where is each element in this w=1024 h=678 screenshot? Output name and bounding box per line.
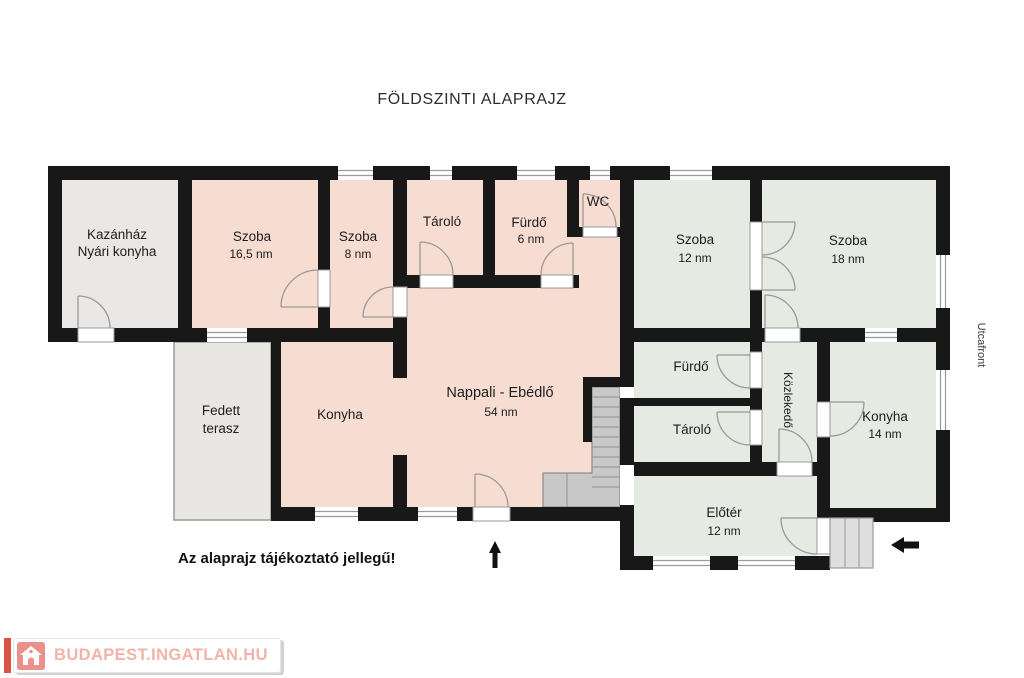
svg-text:16,5 nm: 16,5 nm xyxy=(229,247,272,261)
svg-text:Fürdő: Fürdő xyxy=(673,359,708,374)
svg-text:Nappali - Ebédlő: Nappali - Ebédlő xyxy=(446,385,553,401)
svg-text:18 nm: 18 nm xyxy=(831,252,864,266)
svg-text:12 nm: 12 nm xyxy=(678,251,711,265)
label-konyha-left: Konyha xyxy=(317,407,363,422)
svg-text:Közlekedő: Közlekedő xyxy=(781,372,795,428)
label-furdo-right: Fürdő xyxy=(673,359,708,374)
label-kozlekedo: Közlekedő xyxy=(781,372,795,428)
street-side-label: Utcafront xyxy=(975,323,987,368)
screenshot-root: FÖLDSZINTI ALAPRAJZ xyxy=(0,0,1024,678)
label-tarolo-right: Tároló xyxy=(673,422,711,437)
logo-text: BUDAPEST.INGATLAN.HU xyxy=(54,646,268,665)
svg-text:terasz: terasz xyxy=(203,421,240,436)
svg-text:54 nm: 54 nm xyxy=(484,405,517,419)
svg-text:14 nm: 14 nm xyxy=(868,427,901,441)
svg-text:Szoba: Szoba xyxy=(829,233,868,248)
svg-text:Fürdő: Fürdő xyxy=(511,215,546,230)
house-icon xyxy=(17,642,45,670)
north-arrow-icon xyxy=(489,541,501,568)
svg-text:WC: WC xyxy=(587,194,610,209)
svg-text:8 nm: 8 nm xyxy=(345,247,372,261)
logo-chip: BUDAPEST.INGATLAN.HU xyxy=(13,638,281,673)
floor-plan: FÖLDSZINTI ALAPRAJZ xyxy=(0,0,1024,678)
svg-text:Konyha: Konyha xyxy=(862,409,908,424)
entrance-steps xyxy=(830,518,873,568)
svg-text:Kazánház: Kazánház xyxy=(87,227,147,242)
svg-text:Tároló: Tároló xyxy=(673,422,711,437)
entrance-arrow-icon xyxy=(891,537,919,553)
page-title: FÖLDSZINTI ALAPRAJZ xyxy=(377,90,566,108)
svg-text:Szoba: Szoba xyxy=(339,229,378,244)
svg-text:Szoba: Szoba xyxy=(676,232,715,247)
svg-text:Fedett: Fedett xyxy=(202,403,241,418)
svg-text:Előtér: Előtér xyxy=(706,505,742,520)
site-logo[interactable]: BUDAPEST.INGATLAN.HU xyxy=(4,638,281,673)
svg-text:Nyári konyha: Nyári konyha xyxy=(78,244,157,259)
svg-text:12 nm: 12 nm xyxy=(707,524,740,538)
svg-text:Szoba: Szoba xyxy=(233,229,272,244)
label-tarolo-top: Tároló xyxy=(423,214,461,229)
logo-accent-bar xyxy=(4,638,11,673)
svg-text:6 nm: 6 nm xyxy=(518,232,545,246)
disclaimer-note: Az alaprajz tájékoztató jellegű! xyxy=(178,550,396,567)
label-wc: WC xyxy=(587,194,610,209)
svg-text:Konyha: Konyha xyxy=(317,407,363,422)
svg-text:Tároló: Tároló xyxy=(423,214,461,229)
